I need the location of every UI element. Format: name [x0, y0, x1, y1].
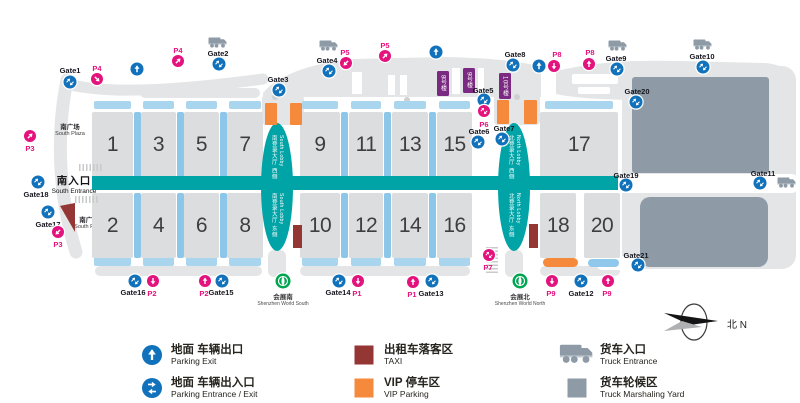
- hall-8: 8: [227, 193, 263, 258]
- gate18-label: Gate18: [23, 190, 48, 199]
- gate14-label: Gate14: [325, 288, 350, 297]
- south-lobby-lower-label: 南登录大厅 东侧South Lobby: [270, 193, 284, 238]
- hall-1-number: 1: [107, 133, 118, 157]
- north-lobby-lower-label: 北登录大厅 东侧North Lobby: [507, 193, 521, 238]
- stairs-hatch: [75, 196, 99, 203]
- parking-p5-up-right-label: P5: [380, 41, 389, 50]
- gate9-icon: [611, 63, 624, 76]
- legend-parking-entrance-exit-en: Parking Entrance / Exit: [171, 390, 257, 400]
- gate15-icon: [216, 275, 229, 288]
- parking-p3-up-right-label: P3: [25, 144, 34, 153]
- gate13-icon: [426, 275, 439, 288]
- parking-p4-down-right-icon: [91, 73, 103, 85]
- hall-18: 18: [540, 193, 576, 258]
- parking-p3-up-right-icon: [24, 130, 36, 142]
- corridor-bar-top: [439, 101, 470, 109]
- metro-shenzhen-world-north-icon: [513, 274, 528, 289]
- north-lobby-lower-zh: 北登录大厅 东侧: [507, 193, 514, 238]
- corridor-bar-vertical: [177, 112, 184, 177]
- truck-marshaling-yard-area: [632, 77, 769, 267]
- legend-parking-entrance-exit-icon: [142, 378, 162, 398]
- gate1-label: Gate1: [60, 66, 81, 75]
- legend-vip-parking-text: VIP 停车区VIP Parking: [384, 377, 440, 400]
- gate11-label: Gate11: [751, 169, 776, 178]
- metro-shenzhen-world-south-en: Shenzhen World South: [257, 301, 308, 307]
- hall-12: 12: [349, 193, 383, 258]
- hall-20: 20: [584, 193, 620, 258]
- parking-p1-down-label: P1: [352, 289, 361, 298]
- corridor-bar-top: [186, 101, 217, 109]
- hall-14: 14: [392, 193, 428, 258]
- corridor-bar-top: [94, 101, 131, 109]
- corridor-bar-vertical: [134, 112, 141, 177]
- gate13-label: Gate13: [418, 289, 443, 298]
- metro-shenzhen-world-south-icon: [276, 274, 291, 289]
- corridor-bar-top: [143, 101, 174, 109]
- hall-15: 15: [437, 112, 472, 177]
- legend-vip-parking-en: VIP Parking: [384, 390, 440, 400]
- parking-p4-up-right-label: P4: [173, 46, 182, 55]
- south-plaza-top-zh: 南广场: [55, 121, 85, 131]
- vip-parking-zone: [497, 100, 509, 124]
- gate5-label: Gate5: [473, 86, 494, 95]
- vip-parking-zone: [543, 258, 578, 267]
- corridor-bar-bottom: [143, 257, 174, 266]
- legend-parking-exit-text: 地面 车辆出口Parking Exit: [171, 344, 243, 367]
- hall-3: 3: [141, 112, 176, 177]
- corridor-bar-bottom: [186, 257, 217, 266]
- gate4-icon: [323, 65, 336, 78]
- parking-p2-down-label: P2: [147, 289, 156, 298]
- venue-map: 南广场 South Plaza 南入口 South Entrance 南广场 S…: [0, 0, 800, 403]
- hall-12-number: 12: [355, 214, 377, 238]
- hall-13: 13: [392, 112, 428, 177]
- compass-icon: [664, 304, 718, 340]
- legend-truck-entrance-text: 货车入口Truck Entrance: [600, 344, 657, 367]
- corridor-bar-vertical: [384, 112, 391, 177]
- north-lobby-upper-label: 北登录大厅 西侧North Lobby: [507, 135, 521, 180]
- hall-15-number: 15: [443, 133, 465, 157]
- corridor-bar-vertical: [134, 193, 141, 258]
- hall-9: 9: [300, 112, 340, 177]
- corridor-pill: [588, 259, 619, 267]
- hall-11: 11: [349, 112, 383, 177]
- hall-6-number: 6: [196, 214, 207, 238]
- parking-p3-down-left-label: P3: [53, 240, 62, 249]
- south-lobby-upper-en: South Lobby: [278, 135, 284, 180]
- parking-exit-icon: [533, 60, 546, 73]
- corridor-bar-bottom: [229, 257, 261, 266]
- north-lobby-upper-en: North Lobby: [515, 135, 521, 180]
- hall-20-number: 20: [591, 214, 613, 238]
- legend-parking-entrance-exit-text: 地面 车辆出入口Parking Entrance / Exit: [171, 377, 257, 400]
- hall-2-number: 2: [107, 214, 118, 238]
- hall-8-number: 8: [239, 214, 250, 238]
- hall-17: 17: [540, 112, 618, 177]
- south-lobby: 南登录大厅 西侧South Lobby南登录大厅 东侧South Lobby: [261, 123, 293, 251]
- gate15-label: Gate15: [208, 288, 233, 297]
- parking-p9-up-icon: [602, 275, 614, 287]
- parking-p4-up-right-icon: [172, 55, 184, 67]
- gate6-icon: [472, 136, 485, 149]
- parking-p1-down-icon: [352, 275, 364, 287]
- vip-parking-zone: [265, 103, 277, 125]
- legend-vip-parking-swatch: [355, 379, 374, 398]
- hall-9-number: 9: [314, 133, 325, 157]
- south-lobby-lower-zh: 南登录大厅 东侧: [270, 193, 277, 238]
- gate8-label: Gate8: [505, 50, 526, 59]
- gate20-label: Gate20: [624, 87, 649, 96]
- legend-taxi-en: TAXI: [384, 357, 453, 367]
- gate19-icon: [620, 179, 633, 192]
- corridor-bar-top: [545, 101, 613, 109]
- hall-10: 10: [300, 193, 340, 258]
- hall-11-number: 11: [356, 133, 377, 157]
- legend-truck-marshaling-yard-swatch: [568, 379, 587, 398]
- corridor-bar-vertical: [384, 193, 391, 258]
- parking-p8-up-label: P8: [585, 48, 594, 57]
- legend-parking-exit-icon: [142, 345, 162, 365]
- parking-p1-up-label: P1: [407, 290, 416, 299]
- hall-16-number: 16: [443, 214, 465, 238]
- parking-p2-down-icon: [147, 275, 159, 287]
- parking-p9-up-label: P9: [602, 289, 611, 298]
- gate2-icon: [213, 58, 226, 71]
- corridor-bar-top: [229, 101, 261, 109]
- corridor-bar-vertical: [220, 112, 227, 177]
- metro-shenzhen-world-south-label: 会展南Shenzhen World South: [257, 291, 308, 307]
- parking-p3-down-left-icon: [52, 226, 64, 238]
- south-lobby-lower-en: South Lobby: [278, 193, 284, 238]
- parking-p5-down-left-icon: [340, 57, 352, 69]
- south-lobby-upper-label: 南登录大厅 西侧South Lobby: [270, 135, 284, 180]
- gate10-icon: [697, 61, 710, 74]
- truck-icon: [777, 176, 797, 194]
- hall-6: 6: [184, 193, 219, 258]
- south-lobby-upper-zh: 南登录大厅 西侧: [270, 135, 277, 180]
- gate21-label: Gate21: [623, 251, 648, 260]
- parking-p5-down-left-label: P5: [340, 48, 349, 57]
- corridor-bar-bottom: [394, 257, 426, 266]
- parking-p9-down-label: P9: [546, 289, 555, 298]
- parking-p7-dual-label: P7: [483, 263, 492, 272]
- legend-taxi-text: 出租车落客区TAXI: [384, 344, 453, 367]
- hall-16: 16: [437, 193, 472, 258]
- hall-4: 4: [141, 193, 176, 258]
- parking-p8-down-icon: [548, 60, 560, 72]
- parking-p8-up-icon: [583, 58, 595, 70]
- hall-7-number: 7: [239, 133, 250, 157]
- hall-13-number: 13: [399, 133, 421, 157]
- corridor-bar-top: [351, 101, 381, 109]
- gate4-label: Gate4: [317, 56, 338, 65]
- legend-truck-entrance-en: Truck Entrance: [600, 357, 657, 367]
- truck-icon: [319, 39, 339, 57]
- metro-shenzhen-world-north-label: 会展北Shenzhen World North: [495, 291, 546, 307]
- legend-truck-marshaling-yard-text: 货车轮候区Truck Marshaling Yard: [600, 377, 684, 400]
- parking-p8-down-label: P8: [552, 50, 561, 59]
- gate16-icon: [129, 275, 142, 288]
- taxi-drop-off-zone: [293, 225, 302, 248]
- metro-shenzhen-world-north-en: Shenzhen World North: [495, 301, 546, 307]
- hall-5-number: 5: [196, 133, 207, 157]
- truck-icon: [608, 39, 628, 57]
- gate12-label: Gate12: [568, 289, 593, 298]
- gate18-icon: [32, 176, 45, 189]
- south-plaza-top-en: South Plaza: [55, 131, 85, 137]
- building-label: 8号楼: [439, 75, 448, 92]
- south-entrance-label: 南入口 South Entrance: [52, 173, 97, 195]
- compass-zh: 北: [727, 320, 737, 331]
- hall-17-number: 17: [568, 133, 590, 157]
- corridor-bar-top: [302, 101, 338, 109]
- corridor-bar-bottom: [439, 257, 470, 266]
- building-8号楼: 8号楼: [437, 71, 449, 96]
- parking-p4-down-right-label: P4: [92, 64, 101, 73]
- legend-truck-entrance-icon: [559, 342, 595, 370]
- parking-p5-up-right-icon: [379, 50, 391, 62]
- corridor-bar-vertical: [429, 112, 436, 177]
- gate16-label: Gate16: [120, 288, 145, 297]
- hall-10-number: 10: [309, 214, 331, 238]
- legend-parking-exit-en: Parking Exit: [171, 357, 243, 367]
- gate14-icon: [333, 275, 346, 288]
- corridor-bar-bottom: [94, 257, 131, 266]
- gate3-label: Gate3: [268, 75, 289, 84]
- corridor-bar-vertical: [429, 193, 436, 258]
- gate12-icon: [575, 275, 588, 288]
- parking-p6-dual-icon: [478, 105, 490, 117]
- south-entrance-zh: 南入口: [52, 173, 97, 188]
- truck-icon: [693, 38, 713, 56]
- vip-parking-zone: [524, 100, 537, 124]
- parking-p2-up-icon: [199, 275, 211, 287]
- gate20-icon: [630, 96, 643, 109]
- corridor-bar-bottom: [351, 257, 381, 266]
- gate19-label: Gate19: [613, 171, 638, 180]
- hall-4-number: 4: [153, 214, 164, 238]
- taxi-drop-off-zone: [529, 224, 538, 248]
- gate8-icon: [507, 59, 520, 72]
- corridor-bar-vertical: [341, 112, 348, 177]
- parking-exit-icon: [131, 63, 144, 76]
- hall-14-number: 14: [399, 214, 421, 238]
- corridor-bar-vertical: [220, 193, 227, 258]
- legend-taxi-swatch: [355, 346, 374, 365]
- compass-label: 北 N: [727, 316, 747, 331]
- hall-5: 5: [184, 112, 219, 177]
- parking-p7-dual-icon: [483, 249, 495, 261]
- gate7-label: Gate7: [494, 124, 515, 133]
- gate21-icon: [632, 259, 645, 272]
- metro-shenzhen-world-south-zh: 会展南: [257, 291, 308, 301]
- south-plaza-top-label: 南广场 South Plaza: [55, 121, 85, 137]
- gate11-icon: [754, 177, 767, 190]
- parking-p1-up-icon: [407, 276, 419, 288]
- south-entrance-en: South Entrance: [52, 188, 97, 195]
- hall-18-number: 18: [547, 214, 569, 238]
- corridor-bar-vertical: [177, 193, 184, 258]
- gate17-icon: [42, 206, 55, 219]
- hall-7: 7: [227, 112, 263, 177]
- building-label: 10号楼: [501, 76, 510, 97]
- central-concourse: [92, 176, 618, 190]
- gate1-icon: [64, 76, 77, 89]
- hall-3-number: 3: [153, 133, 164, 157]
- parking-p6-dual-label: P6: [479, 120, 488, 129]
- parking-p9-down-icon: [546, 275, 558, 287]
- parking-p2-up-label: P2: [199, 289, 208, 298]
- corridor-bar-top: [394, 101, 426, 109]
- gate7-icon: [496, 133, 509, 146]
- vip-parking-zone: [290, 103, 302, 125]
- compass-en: N: [740, 320, 747, 331]
- corridor-bar-vertical: [341, 193, 348, 258]
- corridor-bar-bottom: [302, 257, 338, 266]
- gate3-icon: [273, 84, 286, 97]
- parking-exit-icon: [430, 46, 443, 59]
- truck-icon: [208, 36, 228, 54]
- stairs-hatch: [79, 164, 103, 171]
- legend-truck-marshaling-yard-en: Truck Marshaling Yard: [600, 390, 684, 400]
- north-lobby-lower-en: North Lobby: [515, 193, 521, 238]
- metro-shenzhen-world-north-zh: 会展北: [495, 291, 546, 301]
- building-10号楼: 10号楼: [499, 73, 511, 99]
